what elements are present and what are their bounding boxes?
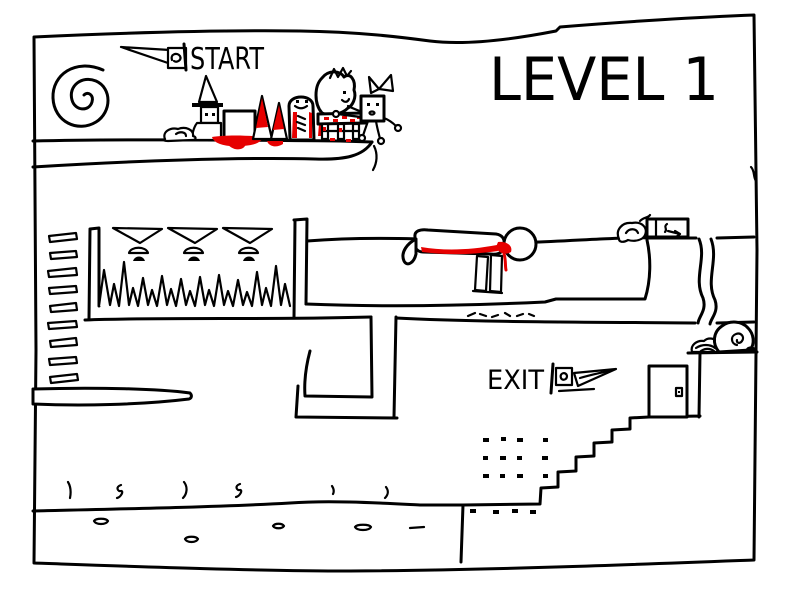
stairs-steps xyxy=(463,417,649,505)
pebbles xyxy=(94,519,424,542)
ragdoll-head[interactable] xyxy=(361,96,384,121)
second-floor xyxy=(85,313,754,323)
ragdoll-hand-right xyxy=(395,125,401,131)
dripper-funnels[interactable] xyxy=(113,228,272,261)
ragdoll-bow-icon xyxy=(369,75,393,93)
dots-grid xyxy=(470,437,548,514)
start-platform xyxy=(33,140,377,170)
start-label: START xyxy=(190,42,265,77)
ladder-rung[interactable] xyxy=(50,374,78,383)
floor-ticks xyxy=(468,313,534,317)
wizard-head[interactable] xyxy=(201,107,218,123)
blood-drip-under-platform-1 xyxy=(226,141,246,149)
door[interactable] xyxy=(649,366,687,417)
funnel-icon[interactable] xyxy=(223,228,272,243)
bloody-cones[interactable] xyxy=(253,96,287,139)
start-flag-pole xyxy=(184,44,186,70)
waterfall-lines xyxy=(698,239,716,324)
dead-stickman-fold xyxy=(403,239,416,264)
maze-walls xyxy=(296,317,397,418)
ladder-rung[interactable] xyxy=(50,338,77,347)
exit-flag-frame[interactable] xyxy=(556,368,572,385)
ragdoll-foot-left xyxy=(359,135,365,141)
ladder-rung[interactable] xyxy=(49,357,77,365)
ladder-rung[interactable] xyxy=(49,233,77,242)
platform-end-tail xyxy=(373,146,377,170)
ghost-blood-right xyxy=(309,112,312,138)
funnel-drop xyxy=(239,248,258,253)
dead-stickman[interactable] xyxy=(403,228,536,293)
ragdoll-arm-right xyxy=(384,118,396,126)
bird-scribble-body[interactable] xyxy=(618,223,646,242)
ragdoll-hand-left xyxy=(333,111,339,117)
ladder-rung[interactable] xyxy=(48,321,77,329)
ladder-rung[interactable] xyxy=(50,251,77,259)
ground-area xyxy=(33,482,463,562)
exit-flag-underline xyxy=(559,389,594,391)
spiral-doodle xyxy=(53,66,108,126)
funnel-icon[interactable] xyxy=(168,228,217,243)
marked-crate[interactable] xyxy=(647,219,688,237)
platform-bottom-line xyxy=(33,142,372,167)
game-canvas[interactable]: LEVEL 1 START xyxy=(0,0,800,600)
ground-squiggles xyxy=(68,482,388,498)
exit-label: EXIT xyxy=(487,365,544,396)
exit-flag[interactable] xyxy=(551,364,616,393)
princess-eye xyxy=(343,91,346,94)
white-box[interactable] xyxy=(224,111,255,139)
left-bar-platform xyxy=(33,388,191,405)
ladder-rung[interactable] xyxy=(48,268,77,277)
princess-hair[interactable] xyxy=(316,72,355,115)
ragdoll-leg-right xyxy=(376,121,380,139)
small-snail[interactable] xyxy=(164,128,196,141)
dead-stickman-head[interactable] xyxy=(504,228,536,260)
ragdoll-foot-right xyxy=(378,138,384,144)
funnel-drip xyxy=(188,257,200,262)
big-snail[interactable] xyxy=(714,322,757,353)
pit-left-wall xyxy=(89,228,99,319)
start-flag[interactable] xyxy=(121,44,186,70)
game-screen: LEVEL 1 START xyxy=(0,0,800,600)
funnel-drip xyxy=(243,257,255,262)
start-flag-pennant[interactable] xyxy=(121,47,170,63)
level-title: LEVEL 1 xyxy=(489,45,719,115)
ground-line xyxy=(33,502,463,562)
blood-drip-under-platform-2 xyxy=(267,141,283,146)
door-knob-dot xyxy=(678,391,680,393)
bloody-ghost[interactable] xyxy=(289,97,314,140)
ladder-rung[interactable] xyxy=(49,286,77,294)
funnel-drop xyxy=(129,248,148,253)
funnel-icon[interactable] xyxy=(113,228,162,243)
crate-box[interactable] xyxy=(647,219,688,237)
funnel-drip xyxy=(133,257,145,262)
small-snail-shell[interactable] xyxy=(164,128,196,141)
wizard[interactable] xyxy=(192,76,223,140)
dead-stickman-legs xyxy=(475,255,502,292)
wizard-hat-icon[interactable] xyxy=(199,76,217,102)
ladder-rung[interactable] xyxy=(50,303,77,312)
dead-stickman-blood-drip xyxy=(504,254,506,270)
exit-flag-pole xyxy=(551,364,553,393)
funnel-drop xyxy=(184,248,203,253)
ladder-rungs[interactable] xyxy=(48,233,78,383)
spikes xyxy=(99,262,290,306)
floor-line xyxy=(85,317,754,323)
